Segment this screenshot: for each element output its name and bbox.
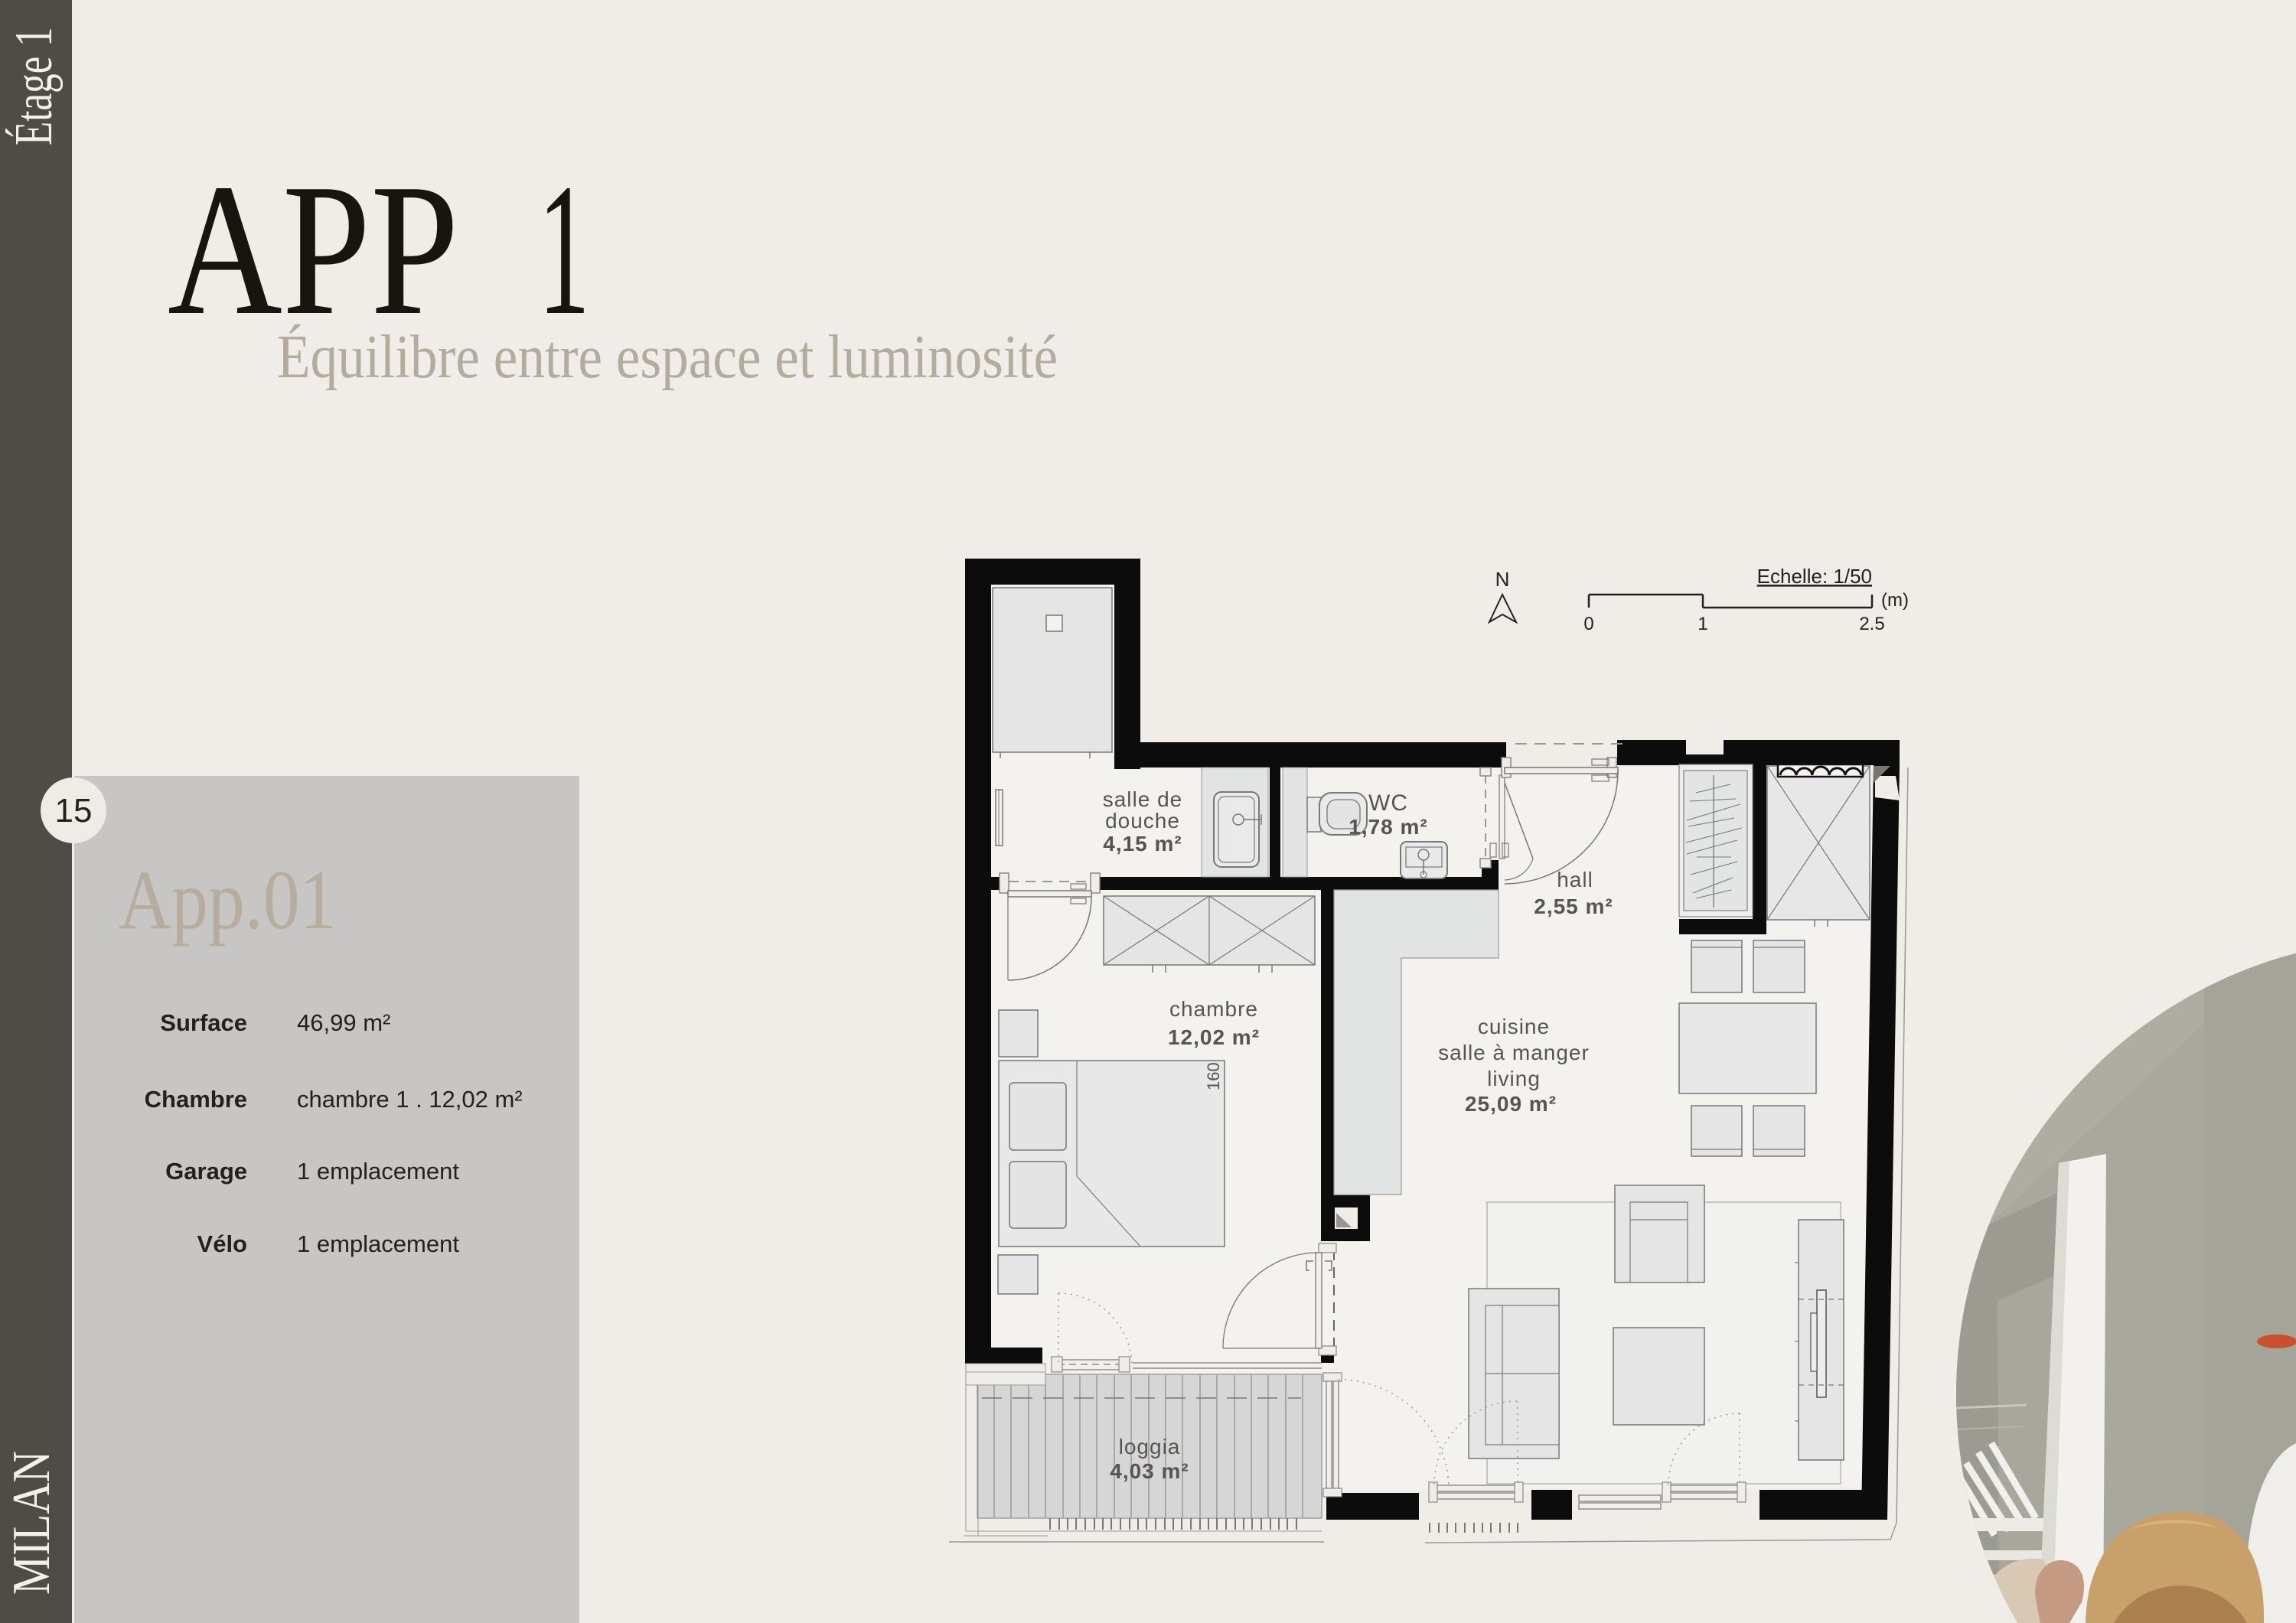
svg-text:1 emplacement: 1 emplacement bbox=[297, 1230, 459, 1257]
svg-text:hall: hall bbox=[1557, 868, 1593, 891]
svg-text:4,03 m²: 4,03 m² bbox=[1110, 1459, 1189, 1483]
svg-text:2,55 m²: 2,55 m² bbox=[1534, 895, 1613, 918]
svg-text:douche: douche bbox=[1105, 809, 1180, 833]
svg-text:Echelle: 1/50: Echelle: 1/50 bbox=[1757, 565, 1872, 588]
svg-text:App.01: App.01 bbox=[119, 854, 336, 947]
svg-text:Équilibre entre espace et lumi: Équilibre entre espace et luminosité bbox=[277, 324, 1058, 391]
svg-text:Chambre: Chambre bbox=[145, 1086, 247, 1113]
svg-text:MILAN: MILAN bbox=[2, 1451, 61, 1595]
svg-text:1,78 m²: 1,78 m² bbox=[1349, 815, 1428, 839]
svg-text:Vélo: Vélo bbox=[197, 1230, 247, 1257]
svg-text:salle de: salle de bbox=[1103, 787, 1183, 811]
svg-text:chambre 1 . 12,02 m²: chambre 1 . 12,02 m² bbox=[297, 1086, 523, 1113]
svg-text:Étage 1: Étage 1 bbox=[4, 27, 64, 145]
svg-text:4,15 m²: 4,15 m² bbox=[1103, 832, 1182, 855]
svg-text:chambre: chambre bbox=[1169, 997, 1258, 1021]
svg-text:15: 15 bbox=[55, 792, 93, 829]
svg-text:25,09 m²: 25,09 m² bbox=[1465, 1092, 1557, 1116]
svg-text:cuisine: cuisine bbox=[1478, 1015, 1550, 1038]
svg-text:Surface: Surface bbox=[160, 1009, 247, 1036]
svg-text:living: living bbox=[1487, 1067, 1541, 1090]
svg-text:0: 0 bbox=[1583, 614, 1593, 634]
svg-text:salle à manger: salle à manger bbox=[1438, 1041, 1590, 1064]
svg-text:loggia: loggia bbox=[1119, 1435, 1181, 1458]
svg-text:WC: WC bbox=[1368, 790, 1408, 816]
svg-text:Garage: Garage bbox=[165, 1158, 247, 1185]
svg-text:APP: APP bbox=[168, 145, 459, 354]
svg-text:46,99 m²: 46,99 m² bbox=[297, 1009, 390, 1036]
svg-text:1 emplacement: 1 emplacement bbox=[297, 1158, 459, 1185]
svg-text:12,02 m²: 12,02 m² bbox=[1168, 1025, 1260, 1049]
svg-text:2.5: 2.5 bbox=[1859, 614, 1884, 634]
svg-text:N: N bbox=[1495, 568, 1510, 591]
svg-text:(m): (m) bbox=[1881, 590, 1909, 611]
svg-text:160: 160 bbox=[1204, 1062, 1223, 1090]
svg-text:1: 1 bbox=[1698, 614, 1707, 634]
